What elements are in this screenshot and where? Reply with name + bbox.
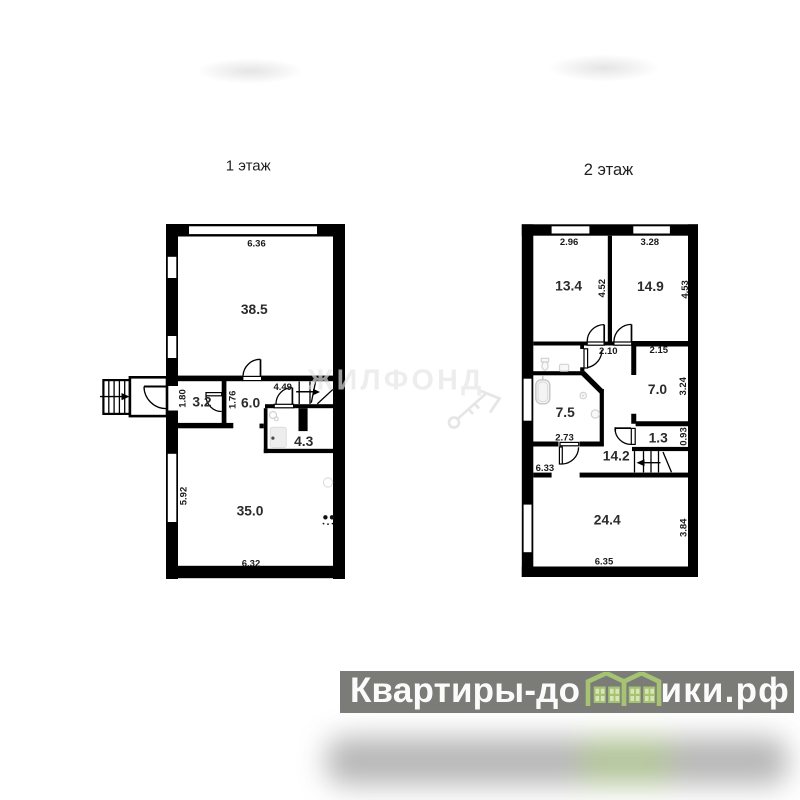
svg-text:3.84: 3.84 bbox=[679, 518, 690, 537]
svg-text:3.24: 3.24 bbox=[678, 376, 689, 395]
svg-text:4.3: 4.3 bbox=[294, 434, 314, 449]
svg-text:2.96: 2.96 bbox=[560, 237, 579, 248]
svg-text:1 этаж: 1 этаж bbox=[226, 158, 271, 175]
svg-text:5.92: 5.92 bbox=[178, 487, 189, 506]
svg-text:3.2: 3.2 bbox=[192, 395, 212, 410]
svg-text:13.4: 13.4 bbox=[555, 278, 582, 293]
svg-text:7.0: 7.0 bbox=[648, 382, 668, 397]
svg-text:2.10: 2.10 bbox=[599, 346, 618, 357]
svg-text:1.76: 1.76 bbox=[227, 391, 238, 410]
svg-text:35.0: 35.0 bbox=[237, 503, 264, 518]
svg-text:6.0: 6.0 bbox=[241, 396, 261, 411]
svg-text:7.5: 7.5 bbox=[556, 405, 576, 420]
svg-text:6.36: 6.36 bbox=[247, 238, 266, 249]
svg-text:3.28: 3.28 bbox=[641, 237, 660, 248]
svg-text:14.2: 14.2 bbox=[603, 448, 630, 463]
svg-text:14.9: 14.9 bbox=[637, 279, 664, 294]
svg-text:4.52: 4.52 bbox=[597, 279, 608, 298]
svg-text:2.73: 2.73 bbox=[555, 433, 574, 444]
svg-text:6.35: 6.35 bbox=[595, 557, 614, 568]
svg-text:6.32: 6.32 bbox=[242, 558, 261, 569]
svg-text:0.93: 0.93 bbox=[679, 427, 690, 446]
svg-text:ЖИЛФОНД: ЖИЛФОНД bbox=[307, 365, 485, 397]
svg-text:24.4: 24.4 bbox=[594, 512, 621, 527]
svg-text:6.33: 6.33 bbox=[536, 463, 555, 474]
svg-text:1.3: 1.3 bbox=[649, 431, 669, 446]
svg-text:2 этаж: 2 этаж bbox=[584, 161, 633, 179]
svg-text:2.15: 2.15 bbox=[650, 345, 669, 356]
svg-text:4.49: 4.49 bbox=[273, 382, 292, 393]
svg-text:4.53: 4.53 bbox=[680, 280, 691, 299]
svg-text:1.80: 1.80 bbox=[177, 389, 188, 408]
svg-text:38.5: 38.5 bbox=[241, 302, 268, 317]
